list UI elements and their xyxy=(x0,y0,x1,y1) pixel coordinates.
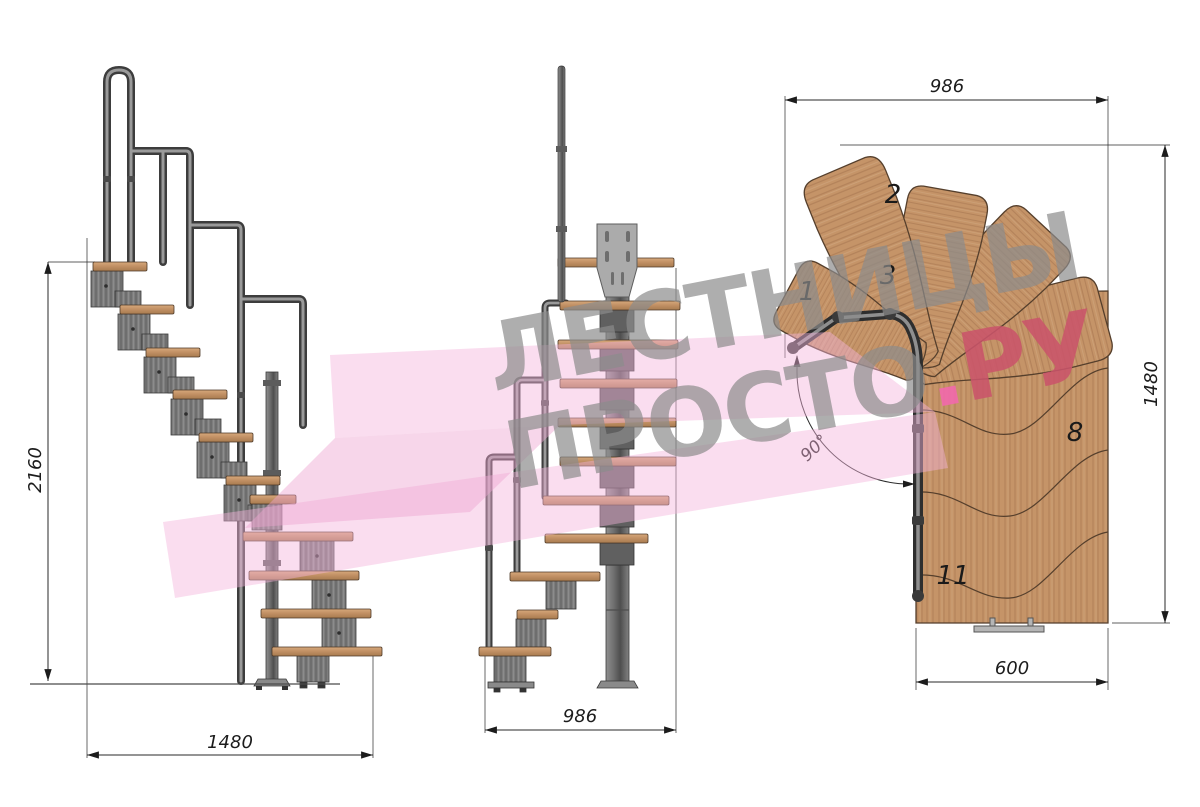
stairs-technical-drawing-page: 2160 1480 xyxy=(0,0,1200,807)
plan-step-number: 11 xyxy=(936,561,969,591)
front-view-dimensions: 986 xyxy=(485,706,676,730)
front-view-baluster xyxy=(556,66,567,302)
plan-length-dimension: 1480 xyxy=(1141,361,1162,407)
plan-step-number: 2 xyxy=(885,180,902,210)
plan-width-dimension: 986 xyxy=(930,76,964,97)
side-height-dimension: 2160 xyxy=(25,447,46,493)
plan-step-number: 8 xyxy=(1067,418,1084,448)
side-length-dimension: 1480 xyxy=(207,732,253,753)
front-width-dimension: 986 xyxy=(563,706,597,727)
side-elevation-view: 2160 1480 xyxy=(25,70,382,758)
plan-exit-dimension: 600 xyxy=(995,658,1029,679)
